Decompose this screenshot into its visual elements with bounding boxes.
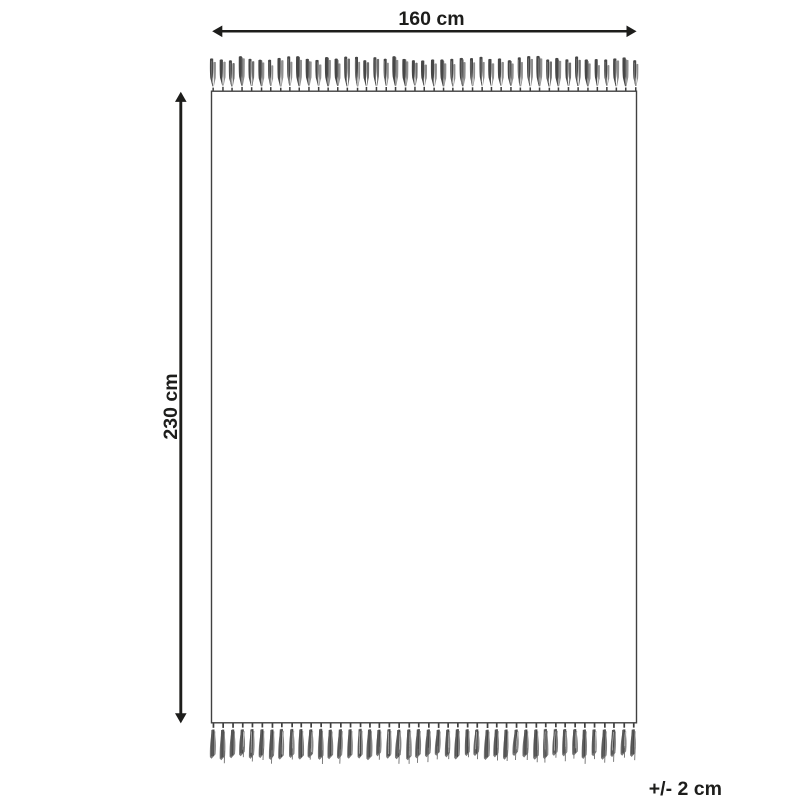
svg-text:160 cm: 160 cm <box>398 8 464 30</box>
svg-text:230 cm: 230 cm <box>160 373 182 439</box>
svg-text:+/- 2 cm: +/- 2 cm <box>649 778 722 800</box>
